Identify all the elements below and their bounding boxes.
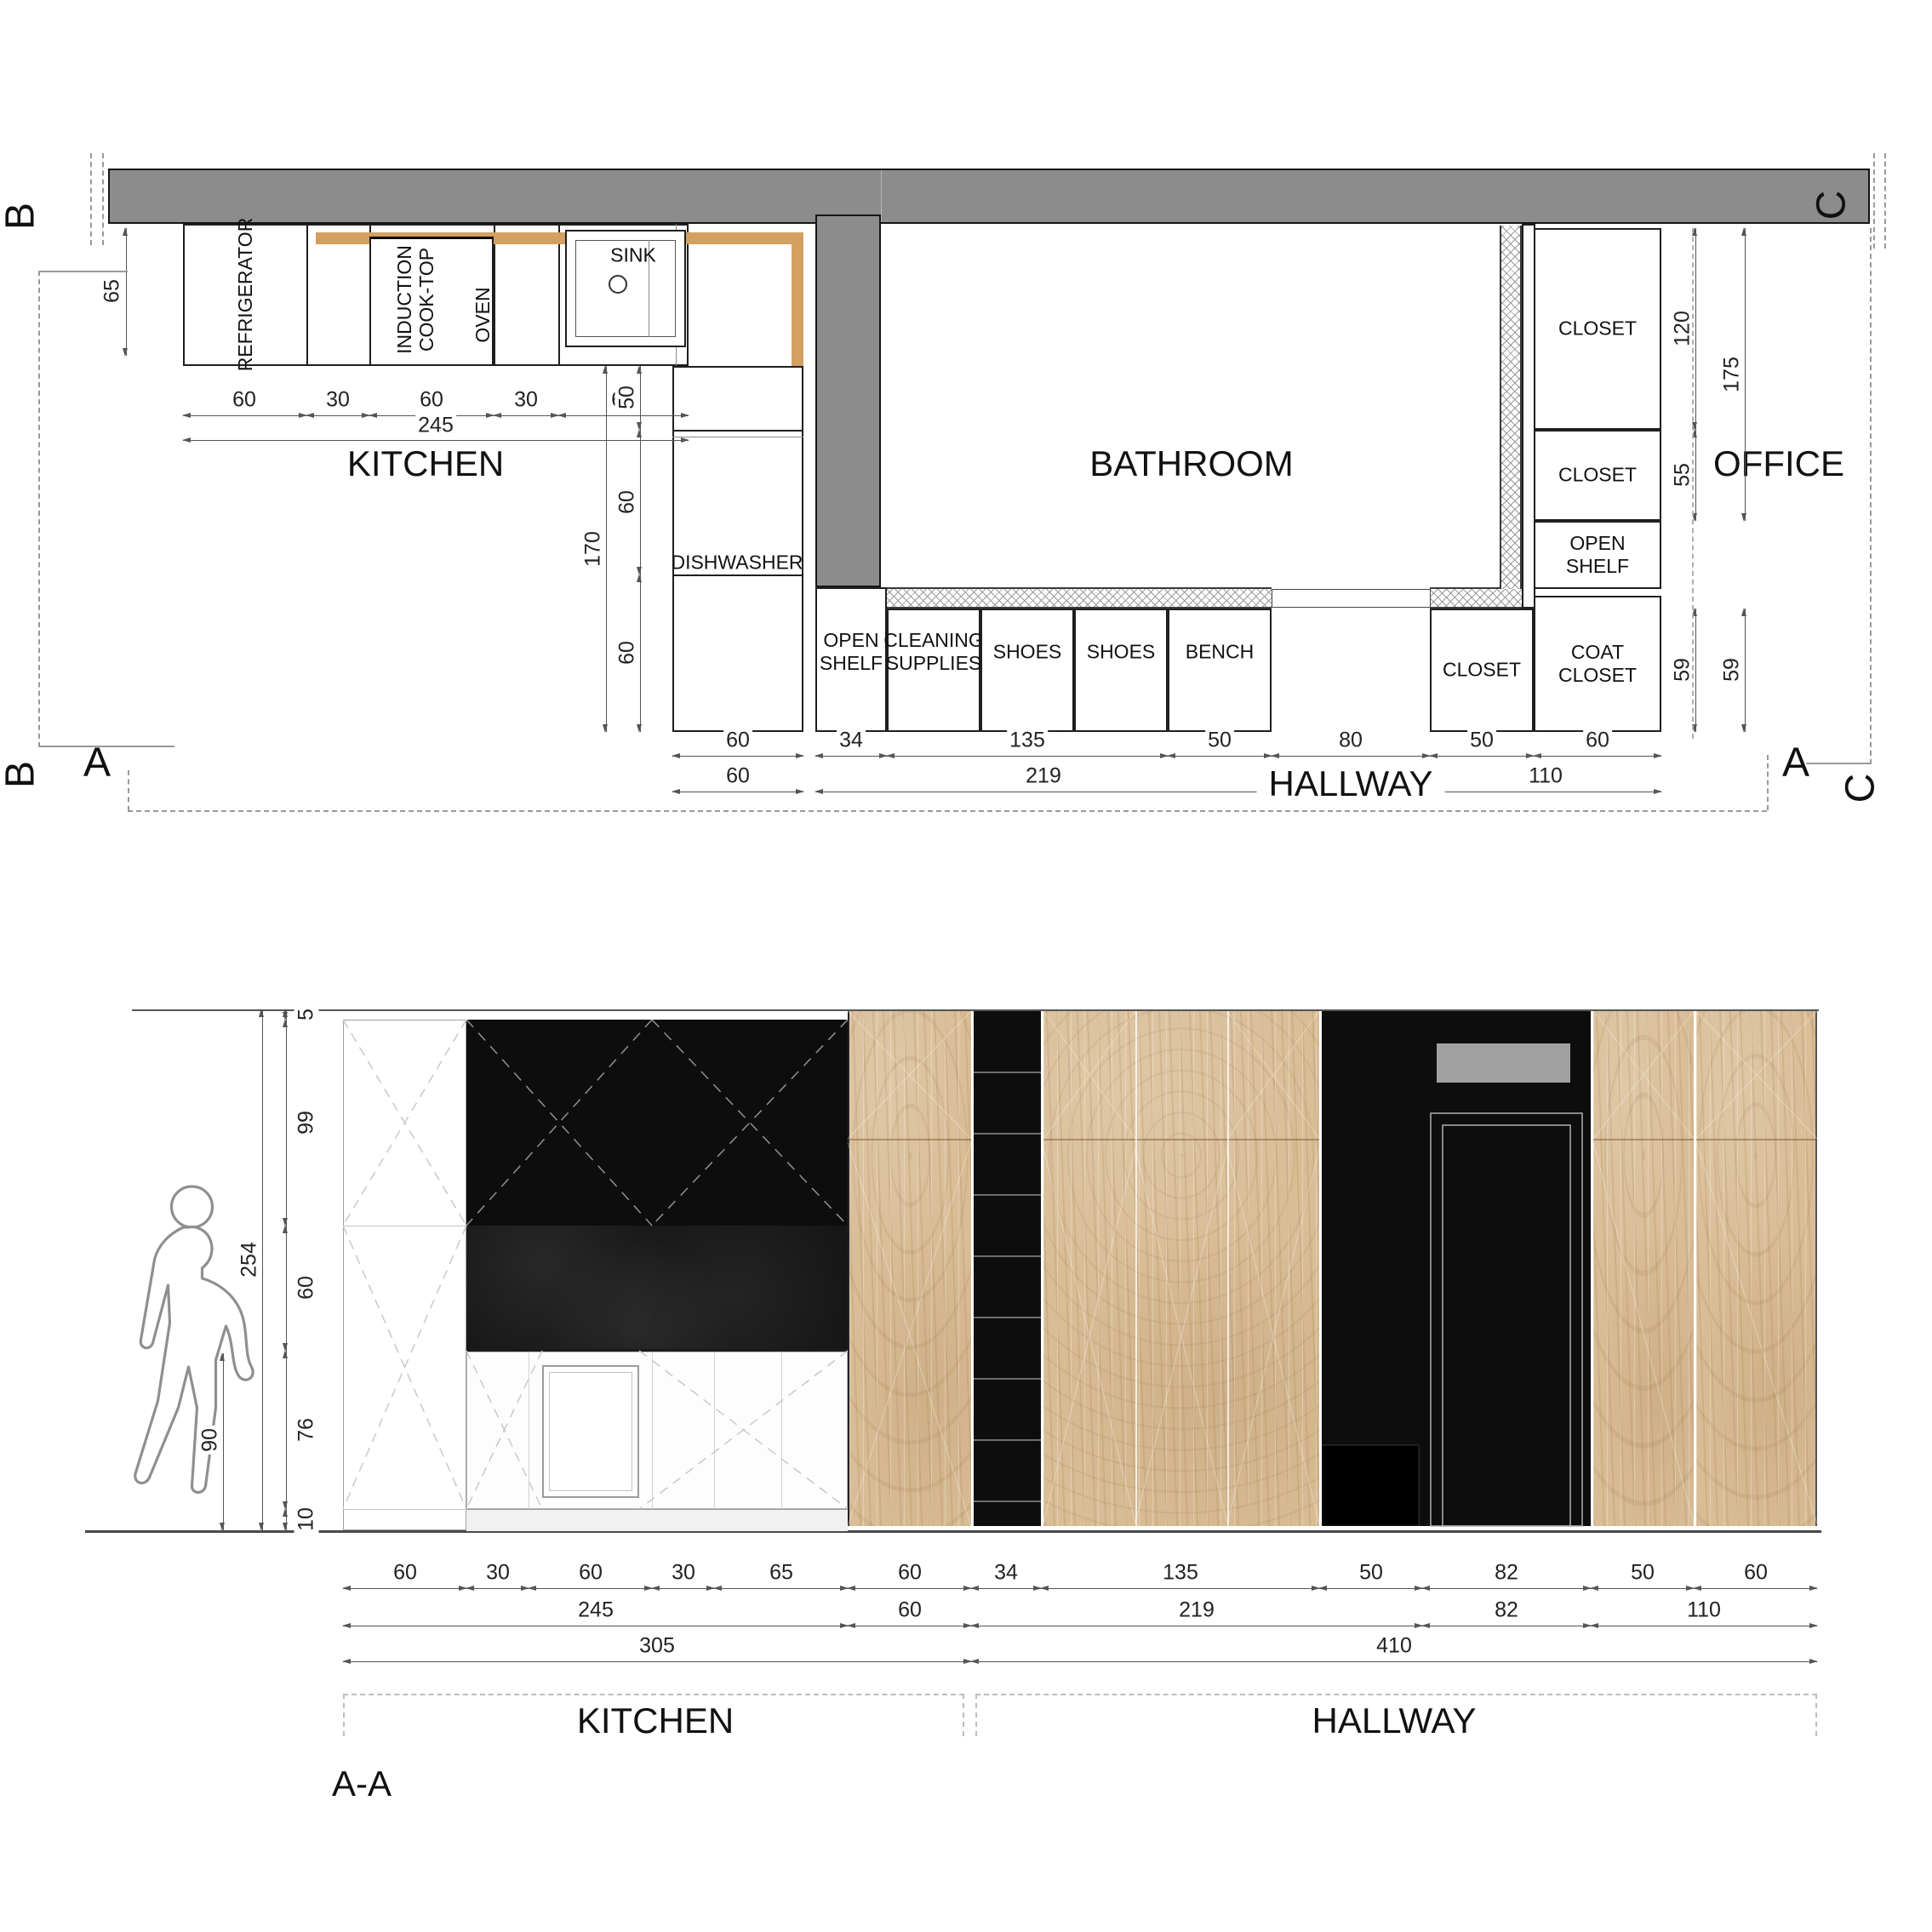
dim-value: 110: [1526, 764, 1565, 789]
dim-value: 254: [237, 1239, 262, 1280]
dim-line: [1591, 1588, 1694, 1589]
dim-line: [529, 1588, 652, 1589]
dim-line: [815, 756, 887, 757]
dim-value: 60: [723, 729, 752, 753]
dishwasher-label: DISHWASHER: [671, 552, 803, 574]
dim-value: 110: [1684, 1598, 1723, 1623]
dim-line: [971, 1626, 1422, 1626]
dim-line: [183, 440, 689, 441]
zone-kitchen-label: KITCHEN: [569, 1701, 742, 1741]
bench-box: [1168, 609, 1272, 732]
dim-value: 30: [512, 388, 540, 413]
dim-value: 305: [637, 1634, 677, 1659]
dim-line: [1041, 1588, 1319, 1589]
dim-value: 60: [895, 1598, 924, 1623]
dim-value: 60: [1583, 729, 1612, 753]
dim-value: 82: [1492, 1598, 1521, 1623]
bathroom-room-label: BATHROOM: [1089, 443, 1294, 484]
dim-line: [183, 415, 306, 416]
insulation-hatch: [1500, 226, 1522, 589]
dim-line: [714, 1588, 848, 1589]
cabinet-divider: [672, 574, 803, 576]
dim-value: 245: [575, 1598, 616, 1623]
door-opening-edge: [1272, 589, 1272, 608]
architectural-drawing: REFRIGERATOR INDUCTION COOK-TOP OVEN SIN…: [0, 0, 1932, 1932]
oven-label: OVEN: [472, 287, 494, 342]
dim-line: [1695, 609, 1696, 732]
dim-line: [343, 1588, 466, 1589]
section-line: [38, 271, 128, 272]
section-line-c-end: [1884, 153, 1886, 249]
section-marker-c: C: [1809, 191, 1855, 220]
dim-value: 80: [1336, 729, 1365, 753]
sink-label: SINK: [610, 244, 656, 267]
open-shelf-label: OPEN SHELF: [1566, 532, 1629, 578]
dim-value: 50: [1467, 729, 1496, 753]
dim-line: [848, 1588, 971, 1589]
dim-value: 50: [1628, 1561, 1657, 1586]
closet-label: CLOSET: [1558, 317, 1637, 340]
dim-line: [1745, 228, 1746, 521]
cabinet-divider: [672, 430, 803, 432]
shoes-box: [1074, 609, 1168, 732]
section-marker-b: B: [0, 761, 44, 788]
dim-line: [887, 756, 1168, 757]
shoes-label: SHOES: [1087, 641, 1156, 664]
section-line-aa: [128, 810, 1767, 812]
dim-line: [1694, 1588, 1817, 1589]
dim-line: [971, 1588, 1041, 1589]
dim-line: [343, 1661, 971, 1662]
dim-value: 135: [1007, 729, 1048, 753]
hallway-room-label: HALLWAY: [1257, 763, 1445, 804]
dim-line: [640, 430, 641, 574]
dim-line: [558, 415, 689, 416]
dim-line: [286, 1226, 287, 1351]
dim-line: [286, 1020, 287, 1226]
elevation-detail-overlay: [0, 1004, 1932, 1540]
dim-line: [672, 756, 803, 757]
zone-bracket: [975, 1694, 1817, 1695]
dim-line: [1168, 756, 1272, 757]
zone-hallway-label: HALLWAY: [1304, 1701, 1485, 1741]
dim-value: 60: [615, 638, 640, 667]
dim-line: [1430, 756, 1534, 757]
dim-value: 60: [391, 1561, 420, 1586]
dim-line: [848, 1626, 971, 1626]
dim-value: 82: [1492, 1561, 1521, 1586]
dim-line: [343, 1626, 848, 1626]
dim-line: [652, 1588, 714, 1589]
dim-value: 10: [294, 1505, 319, 1534]
dim-line: [494, 415, 558, 416]
plan-wall-stub: [815, 214, 881, 587]
dim-line: [466, 1588, 529, 1589]
insulation-hatch: [887, 587, 1272, 609]
office-boundary: [1692, 228, 1694, 739]
door-opening-edge: [1430, 589, 1431, 608]
plan-wall-top: [108, 169, 1870, 224]
dim-value: 410: [1374, 1634, 1415, 1659]
dim-line: [640, 366, 641, 430]
zone-bracket: [1815, 1694, 1817, 1736]
dim-line: [606, 366, 607, 732]
bench-label: BENCH: [1186, 641, 1255, 664]
section-line-c-end: [1873, 153, 1875, 249]
dim-line: [640, 574, 641, 732]
dim-line: [1534, 756, 1661, 757]
zone-bracket: [343, 1694, 345, 1736]
dim-line: [223, 1353, 224, 1530]
section-line-bb: [38, 271, 40, 747]
dim-value: 60: [417, 388, 446, 413]
dim-line: [1695, 228, 1696, 430]
dim-value: 50: [615, 383, 640, 412]
kitchen-room-label: KITCHEN: [347, 443, 504, 484]
cabinet-divider: [494, 224, 495, 366]
refrigerator-label: REFRIGERATOR: [234, 218, 256, 372]
dim-value: 90: [198, 1426, 223, 1455]
dim-line: [1695, 430, 1696, 521]
open-shelf-label: OPEN SHELF: [820, 629, 883, 675]
dim-value: 59: [1720, 655, 1745, 684]
wall-seam: [881, 170, 882, 222]
dim-value: 60: [1741, 1561, 1770, 1586]
cabinet-divider: [306, 224, 308, 366]
dim-value: 65: [100, 277, 125, 306]
section-line-cc: [1870, 228, 1872, 764]
insulation-hatch: [1430, 587, 1522, 609]
shoes-box: [980, 609, 1074, 732]
dim-line: [286, 1509, 287, 1530]
section-line-b-end: [90, 153, 92, 245]
dim-line: [672, 792, 803, 792]
dim-value: 50: [1205, 729, 1234, 753]
section-line-aa: [128, 770, 129, 811]
dim-value: 60: [895, 1561, 924, 1586]
dim-value: 34: [837, 729, 866, 753]
dim-line: [971, 1661, 1817, 1662]
office-room-label: OFFICE: [1713, 443, 1844, 484]
door-transom-window: [1437, 1043, 1570, 1083]
section-marker-c: C: [1838, 774, 1884, 803]
closet-label: CLOSET: [1443, 659, 1521, 682]
dim-value: 99: [294, 1108, 319, 1137]
dim-line: [1422, 1626, 1591, 1626]
dim-line: [1745, 609, 1746, 732]
dim-line: [1430, 792, 1661, 792]
dim-value: 76: [294, 1415, 319, 1444]
bench-niche: [1322, 1445, 1419, 1526]
dim-line: [306, 415, 369, 416]
dim-value: 65: [767, 1561, 796, 1586]
cabinet-divider: [672, 437, 803, 437]
dim-line: [286, 1351, 287, 1509]
dim-value: 60: [230, 388, 259, 413]
section-marker-a: A: [83, 740, 111, 786]
dim-value: 170: [581, 529, 606, 569]
dim-value: 30: [323, 388, 352, 413]
dim-value: 30: [669, 1561, 698, 1586]
section-line-aa: [1767, 755, 1769, 810]
zone-bracket: [975, 1694, 977, 1736]
dim-value: 175: [1720, 354, 1745, 395]
cabinet-divider: [558, 224, 560, 366]
zone-bracket: [963, 1694, 964, 1736]
faucet-icon: [609, 275, 627, 294]
zone-bracket: [343, 1694, 964, 1695]
dim-line: [815, 792, 1272, 792]
dim-line: [1319, 1588, 1422, 1589]
dim-value: 245: [415, 414, 456, 438]
dim-value: 219: [1023, 764, 1064, 789]
closet-label: CLOSET: [1558, 464, 1637, 487]
dim-line: [126, 228, 127, 356]
dim-line: [1272, 756, 1430, 757]
cleaning-supplies-label: CLEANING SUPPLIES: [883, 629, 984, 675]
dim-line: [262, 1009, 263, 1530]
section-marker-b: B: [0, 203, 44, 230]
dim-value: 50: [1357, 1561, 1386, 1586]
cooktop-label: INDUCTION COOK-TOP: [393, 245, 437, 354]
shoes-label: SHOES: [993, 641, 1062, 664]
dim-value: 34: [992, 1561, 1020, 1586]
dim-value: 60: [294, 1273, 319, 1302]
dim-value: 135: [1160, 1561, 1201, 1586]
dim-value: 60: [723, 764, 752, 789]
dim-value: 30: [483, 1561, 512, 1586]
section-line: [1806, 763, 1870, 764]
dim-line: [1422, 1588, 1591, 1589]
dim-value: 5: [294, 1006, 319, 1023]
dim-line: [1591, 1626, 1817, 1626]
dishwasher-column: [672, 366, 803, 732]
coat-closet-label: COAT CLOSET: [1558, 641, 1637, 687]
dim-value: 60: [615, 488, 640, 517]
dim-value: 219: [1176, 1598, 1217, 1623]
section-line-b-end: [102, 153, 104, 245]
dim-value: 60: [576, 1561, 605, 1586]
section-title: A-A: [332, 1763, 392, 1804]
